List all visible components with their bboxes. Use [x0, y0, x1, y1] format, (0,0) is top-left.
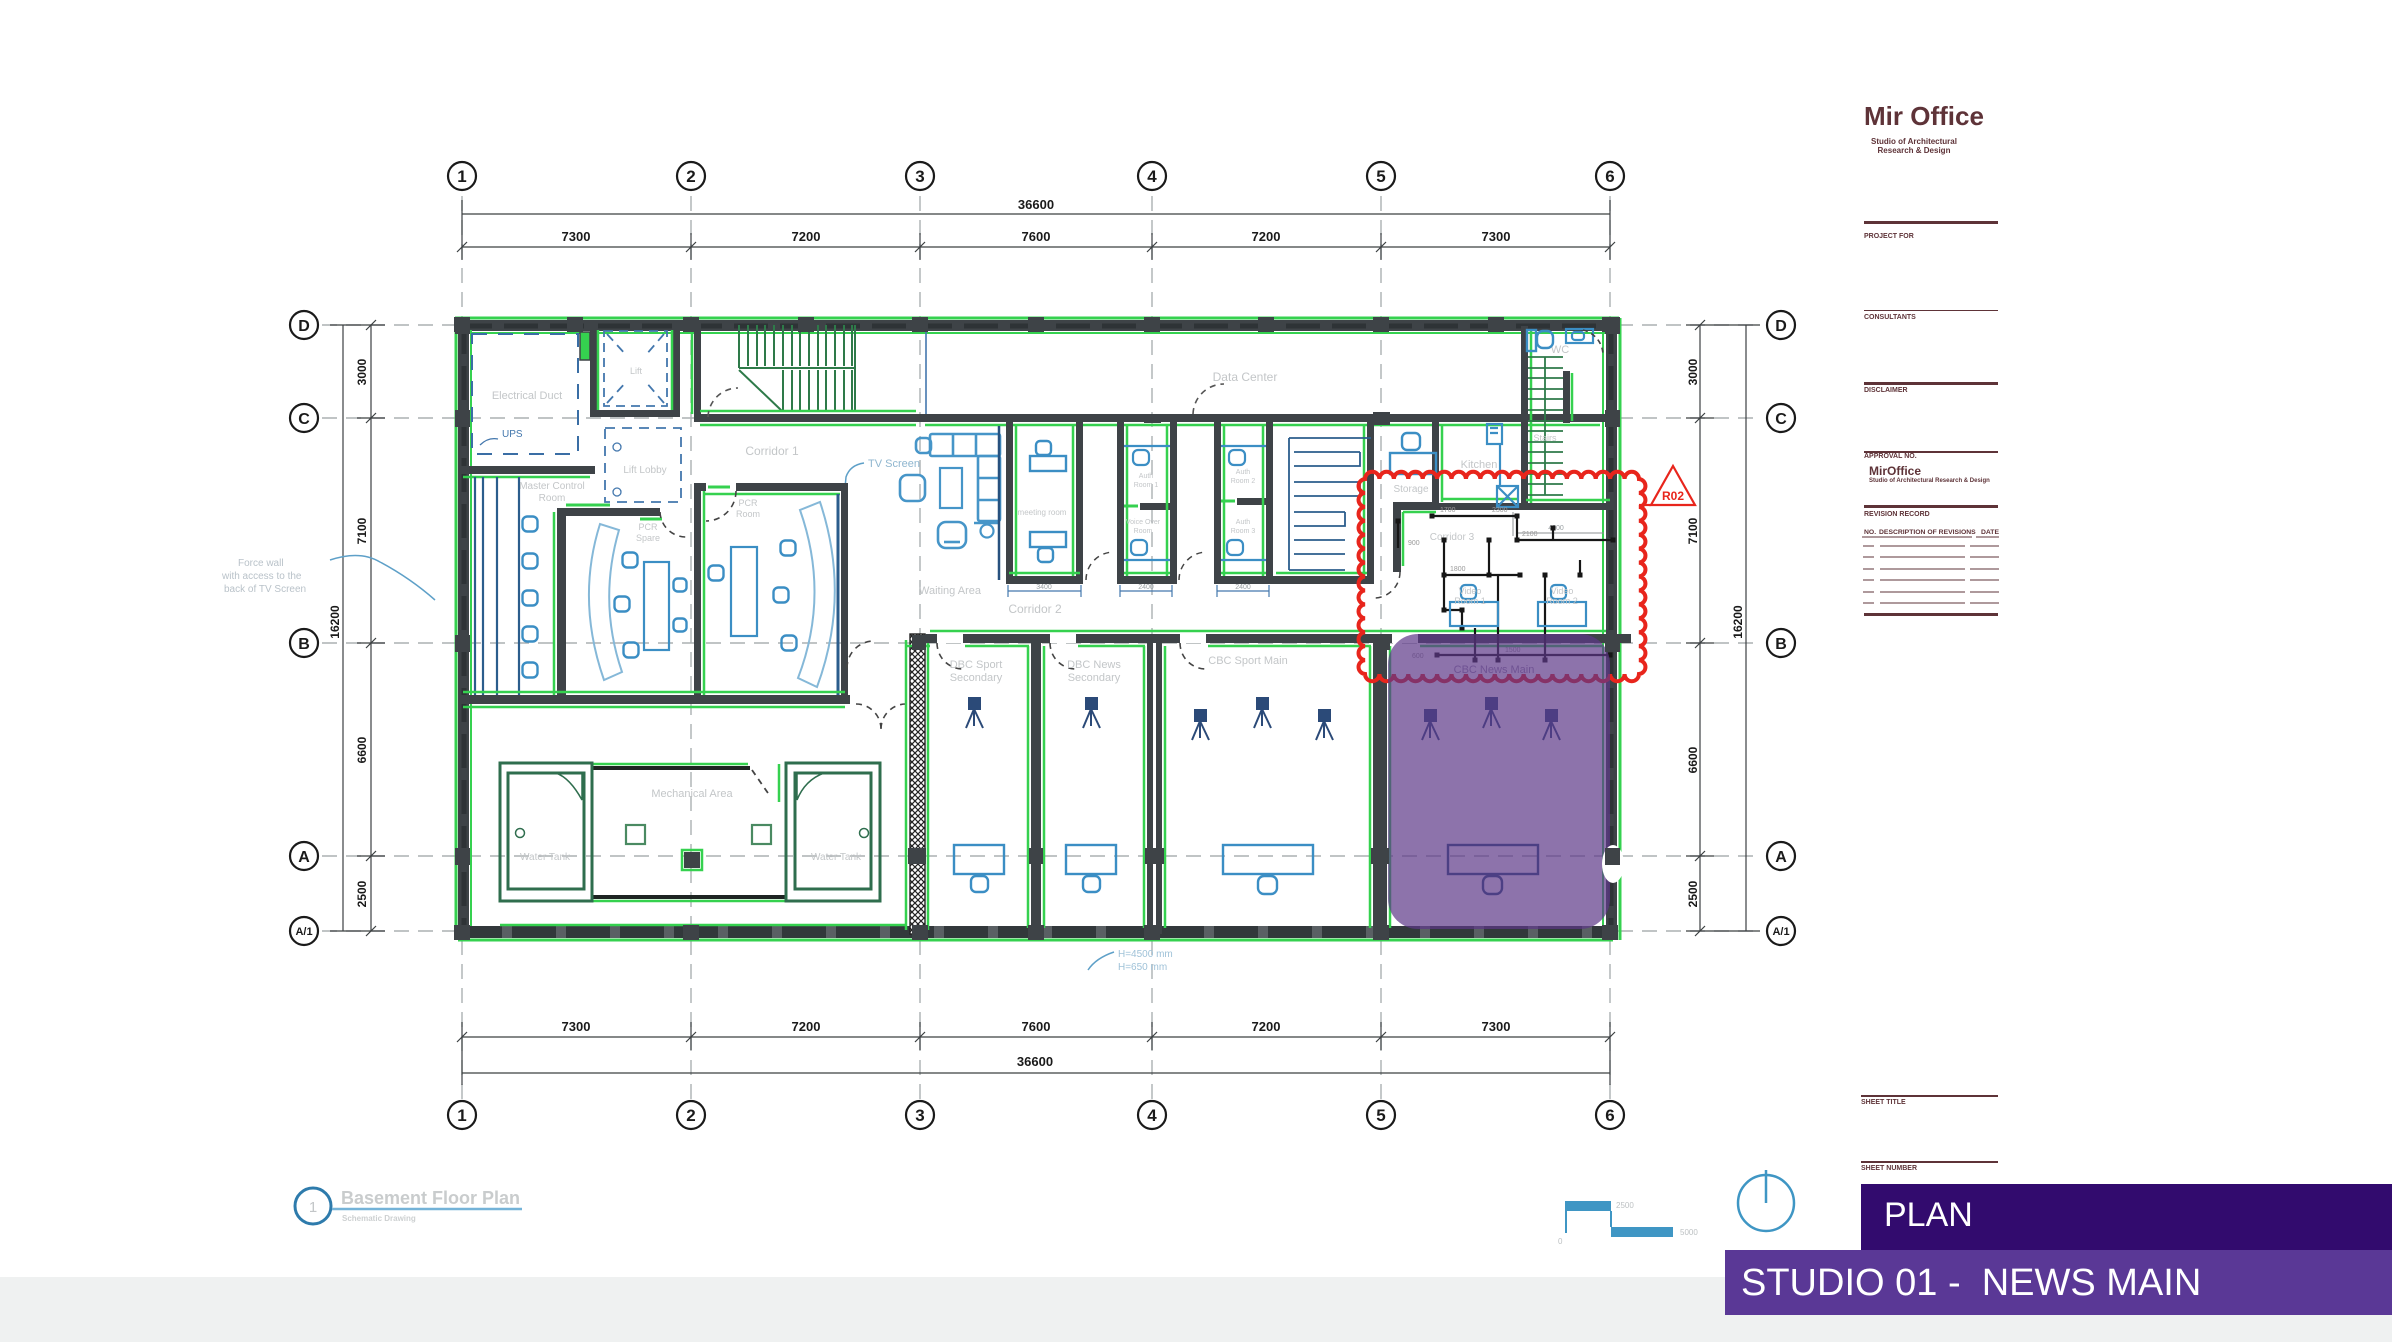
- svg-text:Room: Room: [736, 509, 760, 519]
- svg-text:2400: 2400: [1138, 584, 1154, 591]
- svg-text:Spare: Spare: [636, 533, 660, 543]
- svg-text:2300: 2300: [1492, 507, 1508, 514]
- svg-text:NO.: NO.: [1864, 529, 1876, 536]
- svg-text:A/1: A/1: [1772, 926, 1789, 938]
- svg-text:Secondary: Secondary: [1068, 672, 1121, 684]
- svg-text:Stairs: Stairs: [1533, 433, 1557, 443]
- svg-text:Auth: Auth: [1236, 469, 1251, 476]
- svg-text:3400: 3400: [1036, 584, 1052, 591]
- svg-text:6: 6: [1605, 1106, 1614, 1125]
- svg-text:Master Control: Master Control: [519, 481, 585, 492]
- svg-text:D: D: [1775, 318, 1787, 335]
- svg-text:2: 2: [686, 1106, 695, 1125]
- svg-text:7300: 7300: [562, 1019, 591, 1034]
- svg-text:Video: Video: [1459, 586, 1482, 596]
- svg-text:6: 6: [1605, 167, 1614, 186]
- svg-text:WC: WC: [1551, 344, 1569, 356]
- svg-text:3000: 3000: [1686, 358, 1700, 385]
- svg-text:36600: 36600: [1018, 197, 1054, 212]
- svg-text:H=4500 mm: H=4500 mm: [1118, 949, 1173, 960]
- svg-text:Corridor 2: Corridor 2: [1008, 602, 1062, 616]
- svg-text:1: 1: [309, 1199, 317, 1216]
- svg-text:A/1: A/1: [295, 926, 312, 938]
- svg-text:with access to the: with access to the: [221, 571, 302, 582]
- svg-text:Water Tank: Water Tank: [520, 852, 571, 863]
- svg-text:2500: 2500: [1616, 1201, 1634, 1210]
- svg-text:Lift Lobby: Lift Lobby: [623, 465, 666, 476]
- svg-text:0: 0: [1558, 1237, 1563, 1246]
- svg-text:7600: 7600: [1022, 1019, 1051, 1034]
- svg-text:DESCRIPTION OF REVISIONS: DESCRIPTION OF REVISIONS: [1879, 529, 1976, 536]
- svg-text:R02: R02: [1662, 489, 1684, 503]
- svg-text:C: C: [298, 411, 310, 428]
- svg-text:CBC Sport Main: CBC Sport Main: [1208, 655, 1287, 667]
- svg-text:1: 1: [457, 1106, 466, 1125]
- svg-text:Room 2: Room 2: [1231, 478, 1256, 485]
- svg-text:Room: Room: [539, 493, 566, 504]
- svg-text:1700: 1700: [1440, 507, 1456, 514]
- svg-text:5000: 5000: [1680, 1228, 1698, 1237]
- svg-text:Voice Over: Voice Over: [1126, 519, 1161, 526]
- svg-text:UPS: UPS: [502, 429, 523, 440]
- svg-text:4: 4: [1147, 167, 1157, 186]
- svg-text:3: 3: [915, 1106, 924, 1125]
- svg-text:H=650 mm: H=650 mm: [1118, 962, 1167, 973]
- svg-text:Mechanical Area: Mechanical Area: [651, 788, 733, 800]
- svg-text:3000: 3000: [355, 358, 369, 385]
- svg-text:C: C: [1775, 411, 1787, 428]
- svg-text:3: 3: [915, 167, 924, 186]
- svg-text:2: 2: [686, 167, 695, 186]
- svg-text:5: 5: [1376, 167, 1385, 186]
- svg-text:Lift: Lift: [630, 366, 643, 376]
- svg-text:DBC Sport: DBC Sport: [950, 659, 1003, 671]
- svg-text:PCR: PCR: [638, 522, 658, 532]
- svg-text:B: B: [1775, 636, 1787, 653]
- svg-text:PCR: PCR: [738, 498, 758, 508]
- svg-text:Corridor 1: Corridor 1: [745, 444, 799, 458]
- svg-text:7300: 7300: [562, 229, 591, 244]
- svg-text:Room 1: Room 1: [1454, 596, 1486, 606]
- svg-text:Electrical Duct: Electrical Duct: [492, 390, 562, 402]
- svg-text:2100: 2100: [1522, 531, 1538, 538]
- svg-text:Data Center: Data Center: [1213, 370, 1278, 384]
- svg-text:Room 1: Room 1: [1134, 482, 1159, 489]
- svg-text:7200: 7200: [1252, 229, 1281, 244]
- svg-text:7200: 7200: [792, 229, 821, 244]
- svg-text:A: A: [298, 849, 310, 866]
- svg-text:7300: 7300: [1482, 1019, 1511, 1034]
- svg-text:2500: 2500: [355, 880, 369, 907]
- svg-text:A: A: [1775, 849, 1787, 866]
- svg-text:1800: 1800: [1450, 566, 1466, 573]
- svg-text:Corridor 3: Corridor 3: [1430, 532, 1475, 543]
- svg-text:7300: 7300: [1482, 229, 1511, 244]
- svg-text:4: 4: [1147, 1106, 1157, 1125]
- svg-text:36600: 36600: [1017, 1054, 1053, 1069]
- svg-text:Water Tank: Water Tank: [811, 852, 862, 863]
- svg-text:6600: 6600: [1686, 746, 1700, 773]
- svg-text:DATE: DATE: [1981, 529, 1999, 536]
- svg-text:Force wall: Force wall: [238, 558, 284, 569]
- svg-text:DBC News: DBC News: [1067, 659, 1121, 671]
- svg-text:7100: 7100: [1686, 517, 1700, 544]
- svg-text:Kitchen: Kitchen: [1461, 459, 1498, 471]
- svg-text:Room: Room: [1134, 528, 1153, 535]
- svg-text:6600: 6600: [355, 736, 369, 763]
- svg-text:D: D: [298, 318, 310, 335]
- svg-text:Video: Video: [1551, 586, 1574, 596]
- svg-text:meeting room: meeting room: [1018, 508, 1067, 517]
- svg-text:Storage: Storage: [1393, 484, 1428, 495]
- svg-text:B: B: [298, 636, 310, 653]
- svg-text:Room 3: Room 3: [1231, 528, 1256, 535]
- svg-text:TV Screen: TV Screen: [868, 458, 920, 470]
- svg-text:back of TV Screen: back of TV Screen: [224, 584, 306, 595]
- svg-text:1: 1: [457, 167, 466, 186]
- svg-text:7600: 7600: [1022, 229, 1051, 244]
- svg-text:Room 2: Room 2: [1546, 596, 1578, 606]
- svg-text:2400: 2400: [1235, 584, 1251, 591]
- svg-text:2500: 2500: [1686, 880, 1700, 907]
- svg-text:Auth: Auth: [1139, 473, 1154, 480]
- svg-text:16200: 16200: [1731, 605, 1745, 639]
- svg-text:5: 5: [1376, 1106, 1385, 1125]
- svg-text:900: 900: [1408, 540, 1420, 547]
- svg-text:7200: 7200: [1252, 1019, 1281, 1034]
- svg-text:7200: 7200: [792, 1019, 821, 1034]
- svg-text:Auth: Auth: [1236, 519, 1251, 526]
- svg-text:16200: 16200: [328, 605, 342, 639]
- svg-text:7100: 7100: [355, 517, 369, 544]
- svg-text:Basement Floor Plan: Basement Floor Plan: [341, 1188, 520, 1208]
- svg-text:Waiting Area: Waiting Area: [919, 585, 982, 597]
- svg-text:Schematic Drawing: Schematic Drawing: [342, 1214, 416, 1223]
- svg-text:Secondary: Secondary: [950, 672, 1003, 684]
